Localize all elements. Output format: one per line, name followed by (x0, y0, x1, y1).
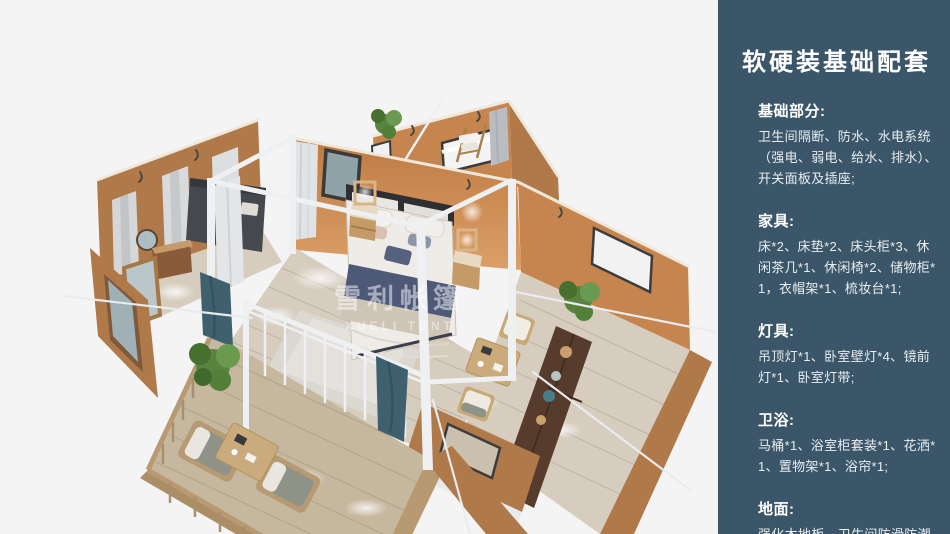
spec-section-bathroom: 卫浴: 马桶*1、浴室柜套装*1、花洒*1、置物架*1、浴帘*1; (758, 409, 940, 477)
spec-body: 吊顶灯*1、卧室壁灯*4、镜前灯*1、卧室灯带; (758, 346, 940, 388)
spec-heading: 地面: (758, 498, 940, 519)
spec-heading: 灯具: (758, 320, 940, 341)
spec-body: 强化木地板、卫生间防滑防潮石塑板; (758, 524, 940, 534)
spec-body: 床*2、床垫*2、床头柜*3、休闲茶几*1、休闲椅*2、储物柜*1，衣帽架*1、… (758, 236, 940, 299)
spec-section-furniture: 家具: 床*2、床垫*2、床头柜*3、休闲茶几*1、休闲椅*2、储物柜*1，衣帽… (758, 210, 940, 299)
spec-sidebar: 软硬装基础配套 基础部分: 卫生间隔断、防水、水电系统（强电、弱电、给水、排水）… (718, 0, 950, 534)
slide: 雪利帐篷 XUELI TENT 软硬装基础配套 基础部分: 卫生间隔断、防水、水… (0, 0, 950, 534)
frame-post (289, 134, 296, 254)
sidebar-title: 软硬装基础配套 (742, 42, 936, 77)
bedroom-sheer-curtain (294, 141, 318, 240)
frame-post (508, 179, 516, 381)
watermark: 雪利帐篷 XUELI TENT (334, 283, 466, 333)
shower-curtain (489, 107, 509, 166)
spec-heading: 卫浴: (758, 409, 940, 430)
spec-body: 卫生间隔断、防水、水电系统（强电、弱电、给水、排水）、开关面板及插座; (758, 126, 940, 189)
floorplan-3d-render: 雪利帐篷 XUELI TENT (0, 0, 718, 534)
spec-section-basics: 基础部分: 卫生间隔断、防水、水电系统（强电、弱电、给水、排水）、开关面板及插座… (758, 100, 940, 189)
watermark-en: XUELI TENT (345, 319, 455, 333)
spec-heading: 基础部分: (758, 100, 940, 121)
spec-section-flooring: 地面: 强化木地板、卫生间防滑防潮石塑板; (758, 498, 940, 534)
spec-sections: 基础部分: 卫生间隔断、防水、水电系统（强电、弱电、给水、排水）、开关面板及插座… (742, 77, 936, 534)
nightstand-right (452, 230, 482, 290)
spec-section-lighting: 灯具: 吊顶灯*1、卧室壁灯*4、镜前灯*1、卧室灯带; (758, 320, 940, 388)
spec-heading: 家具: (758, 210, 940, 231)
spec-body: 马桶*1、浴室柜套装*1、花洒*1、置物架*1、浴帘*1; (758, 435, 940, 477)
floorplan-panel: 雪利帐篷 XUELI TENT (0, 0, 718, 534)
round-mirror (137, 230, 157, 250)
watermark-cn: 雪利帐篷 (334, 283, 466, 314)
teal-curtain (200, 272, 233, 347)
